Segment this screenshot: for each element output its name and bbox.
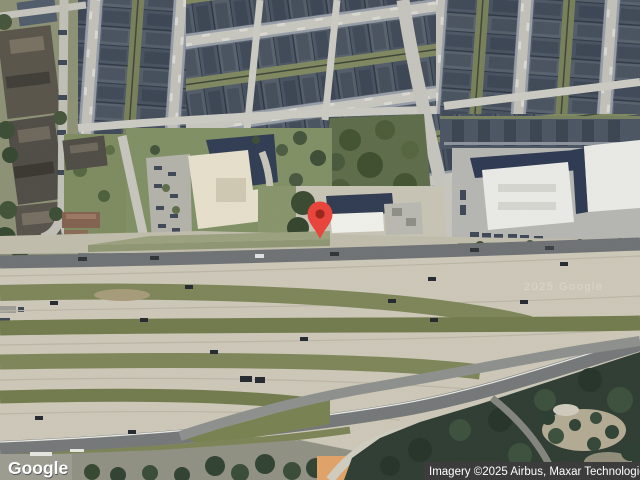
svg-text:Imagery ©2025 Airbus, Maxar Te: Imagery ©2025 Airbus, Maxar Technologies: [429, 466, 640, 478]
svg-text:Google: Google: [8, 458, 69, 478]
